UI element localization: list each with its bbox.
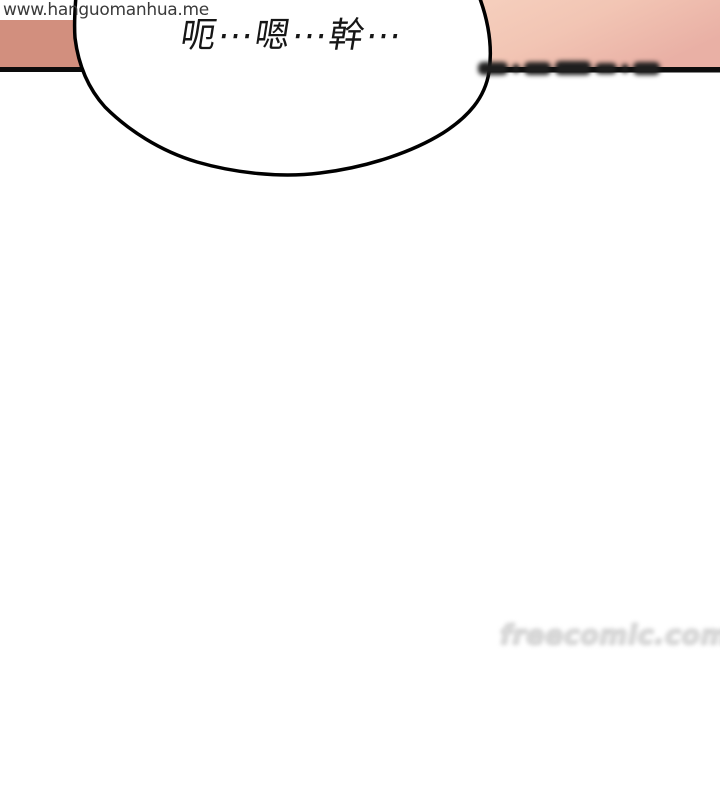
panel-border-line-left xyxy=(0,67,92,72)
watermark-blob xyxy=(633,62,660,75)
blurred-watermark-bottom: freecomic.com xyxy=(500,620,720,651)
watermark-blob xyxy=(524,62,551,75)
watermark-blob xyxy=(555,61,591,75)
blurred-watermark-top xyxy=(478,56,660,80)
comic-page: www.hanguomanhua.me 呃⋯嗯⋯幹⋯ freecomic.com xyxy=(0,0,720,800)
site-watermark-text: www.hanguomanhua.me xyxy=(3,1,209,20)
watermark-blob xyxy=(478,62,508,75)
watermark-blob xyxy=(621,64,629,73)
watermark-blob xyxy=(512,64,520,73)
watermark-blob xyxy=(595,63,617,74)
speech-bubble-text: 呃⋯嗯⋯幹⋯ xyxy=(178,16,406,56)
